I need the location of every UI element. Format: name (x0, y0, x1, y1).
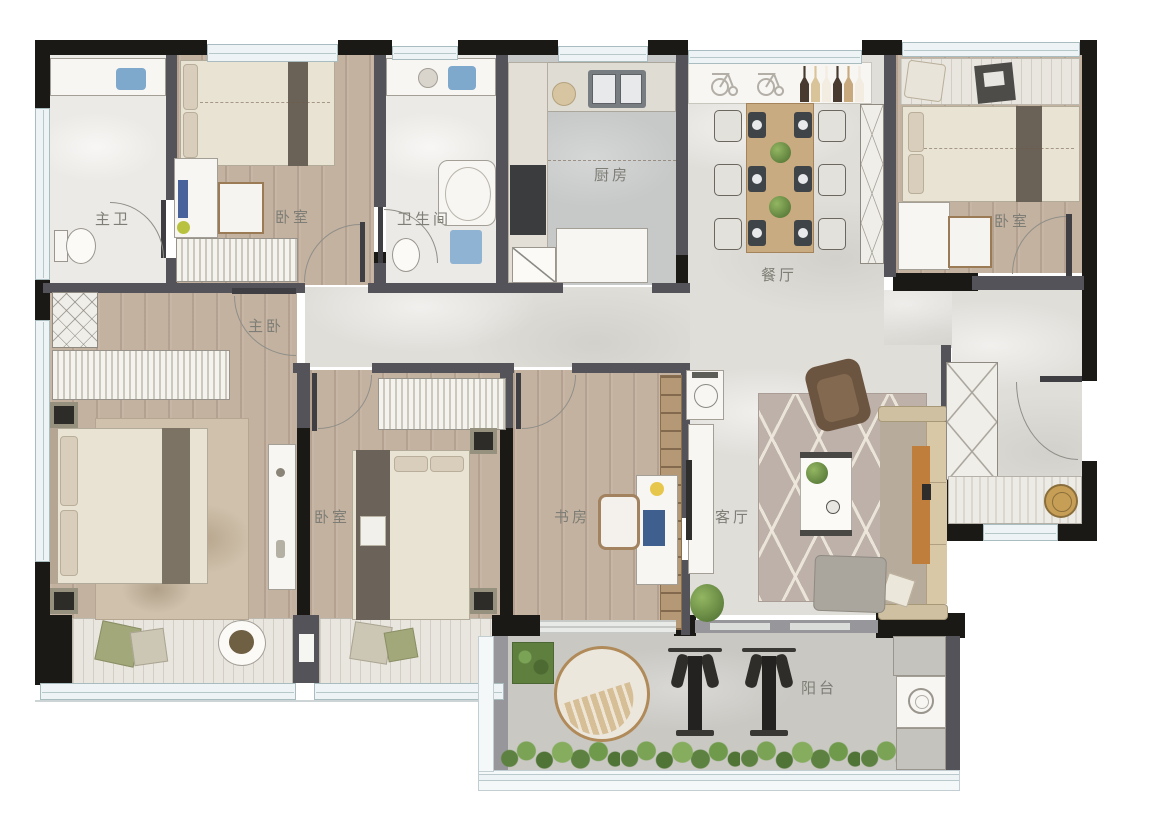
partition (368, 283, 563, 293)
bed (902, 106, 1080, 202)
decor-item (276, 540, 285, 558)
door-leaf-bathroom (378, 207, 383, 263)
dresser-console (268, 444, 296, 590)
room-label-master-bedroom: 主卧 (248, 319, 284, 334)
entry-wardrobe (946, 362, 998, 480)
office-chair (598, 494, 640, 550)
room-label-bedroom-top-left: 卧室 (275, 210, 311, 225)
room-label-bathroom: 卫生间 (397, 212, 451, 227)
dining-chair (714, 110, 742, 142)
table-plant (806, 462, 828, 484)
window-bottom-master (40, 683, 296, 700)
balcony-railing-left (478, 636, 494, 772)
machine-bar (742, 648, 796, 652)
partition (572, 363, 690, 373)
kitchen-island (556, 228, 648, 283)
machine-column (688, 656, 702, 730)
machine-arm (744, 653, 764, 689)
duvet-fold (924, 148, 1074, 149)
machine-arm (700, 653, 720, 689)
sink-basin (116, 68, 146, 90)
partition (884, 55, 896, 277)
headboard (50, 428, 58, 584)
bed-runner (162, 428, 190, 584)
pillow (183, 64, 198, 110)
partition (676, 55, 688, 255)
coffee-table-edge (800, 452, 852, 458)
sliding-door-glass (790, 623, 850, 630)
room-label-bedroom-middle: 卧室 (314, 510, 350, 525)
desk-lamp (650, 482, 664, 496)
toilet-bowl (66, 228, 96, 264)
wall (947, 524, 987, 541)
stool-ring (1052, 492, 1072, 512)
machine-arm (670, 653, 690, 689)
wall-decor-icon (706, 68, 740, 98)
machine-bar (668, 648, 722, 652)
dining-chair (714, 218, 742, 250)
room-label-bedroom-top-right: 卧室 (994, 214, 1030, 229)
nightstand (470, 428, 497, 454)
wardrobe (176, 238, 298, 282)
pillow (60, 436, 78, 506)
laundry-cabinet (896, 728, 946, 770)
table-plant (770, 142, 791, 163)
shower-mat (450, 230, 482, 264)
pillow (394, 456, 428, 472)
nightstand (50, 402, 78, 428)
wall (458, 40, 558, 55)
closet (52, 292, 98, 348)
folded-blanket (360, 516, 386, 546)
machine-base (676, 730, 714, 736)
plate (552, 82, 576, 106)
door-leaf-master-bedroom (232, 288, 296, 294)
bed-runner (288, 60, 308, 166)
wall-pier-opening (299, 634, 314, 662)
place-setting (794, 112, 812, 138)
sink-basin (448, 66, 476, 90)
exercise-machine (668, 648, 722, 744)
cup (826, 500, 840, 514)
room-label-study: 书房 (554, 510, 590, 525)
window-seat-cushion (130, 628, 168, 666)
site-boundary-line (35, 700, 485, 702)
window-top-kitchen (558, 46, 648, 62)
sofa (878, 406, 948, 620)
faucet (692, 372, 718, 378)
window-top-bedroom-right (902, 42, 1080, 57)
window-entry (983, 524, 1058, 541)
machine-arm (774, 653, 794, 689)
wall (297, 426, 310, 618)
place-setting (794, 220, 812, 246)
door-leaf-bedroom-middle (312, 373, 317, 431)
window-top-bathroom (392, 46, 458, 60)
wardrobe (52, 350, 230, 400)
window-top-bedroom-left (207, 44, 338, 62)
sink-bowl (620, 74, 642, 104)
partition (652, 283, 690, 293)
wall (862, 40, 902, 55)
exercise-machine (742, 648, 796, 744)
book (983, 71, 1004, 87)
room-label-living: 客厅 (715, 510, 751, 525)
dressing-mirror (948, 216, 992, 268)
machine-column (762, 656, 776, 730)
wall (648, 40, 688, 55)
door-leaf-study (516, 373, 521, 429)
sofa-armrest (878, 406, 948, 422)
remote (922, 484, 931, 500)
nightstand (470, 588, 497, 614)
window-left-lower (35, 320, 50, 562)
kitchen-door-panel (512, 247, 556, 283)
vanity-counter (386, 58, 496, 96)
pillow (183, 112, 198, 158)
nightstand (50, 588, 78, 614)
bedroom-cabinet (898, 202, 950, 270)
wall (1058, 524, 1097, 541)
floor-plan: 主卫 卧室 卫生间 厨房 餐厅 卧室 主卧 卧室 书房 客厅 阳台 (0, 0, 1162, 820)
window-seat-cushion (384, 628, 419, 663)
balcony-railing (478, 770, 960, 791)
dining-chair (818, 164, 846, 196)
partition (972, 276, 1084, 290)
sink-bowl (592, 74, 616, 104)
window-left-upper (35, 108, 50, 280)
planter-box (512, 642, 554, 684)
wall (35, 40, 50, 108)
decor-ball (177, 221, 190, 234)
place-setting (748, 220, 766, 246)
pillow (60, 510, 78, 576)
place-setting (794, 166, 812, 192)
window-seat-cushion (904, 60, 947, 103)
wall (492, 615, 540, 636)
monitor (178, 180, 188, 218)
room-label-balcony: 阳台 (801, 681, 837, 696)
dining-chair (818, 218, 846, 250)
partition (297, 363, 310, 428)
wall (1082, 40, 1097, 293)
round-basin (418, 68, 438, 88)
pillow (430, 456, 464, 472)
place-setting (748, 112, 766, 138)
bathtub-basin (445, 167, 491, 221)
place-setting (748, 166, 766, 192)
stove-appliance (510, 165, 546, 235)
cat (229, 630, 254, 654)
decor-item (276, 468, 285, 477)
room-label-kitchen: 厨房 (594, 168, 630, 183)
wall (893, 273, 978, 291)
tv (686, 460, 692, 540)
room-label-master-bath: 主卫 (95, 212, 131, 227)
wall (35, 615, 72, 685)
door-leaf-bedroom-left (360, 222, 365, 282)
partition (372, 363, 514, 373)
wardrobe (378, 378, 506, 430)
table-plant (769, 196, 791, 218)
balcony-side-wall (946, 636, 960, 772)
monitor (643, 510, 665, 546)
study-balcony-slider (540, 620, 676, 634)
pillow (908, 112, 924, 152)
floor-hall-right (884, 290, 952, 348)
partition (496, 55, 508, 290)
pillow (908, 154, 924, 194)
sofa-throw-orange (912, 446, 930, 564)
coffee-table (800, 452, 852, 536)
window-top-dining (688, 50, 862, 64)
machine-base (750, 730, 788, 736)
ottoman (813, 555, 887, 613)
basin (694, 384, 718, 408)
counter-guide (548, 160, 676, 161)
floor-plant (690, 584, 724, 622)
duvet-fold (200, 102, 330, 103)
washer-drum-inner (915, 695, 929, 709)
floor-hallway (305, 287, 690, 367)
laundry-cabinet (893, 636, 946, 676)
dining-chair (818, 110, 846, 142)
sliding-door-glass (710, 623, 770, 630)
door-leaf-bedroom-right (1066, 214, 1072, 276)
vanity-counter (50, 58, 166, 96)
sofa-armrest (878, 604, 948, 620)
room-label-dining: 餐厅 (761, 268, 797, 283)
wall-decor-icon (752, 68, 786, 98)
partition (374, 55, 386, 207)
wall (338, 40, 392, 55)
wall (500, 426, 513, 618)
dressing-mirror (218, 182, 264, 234)
balcony-greenery (500, 738, 946, 772)
wall (1082, 293, 1097, 381)
coffee-table-edge (800, 530, 852, 536)
bed-runner (1016, 106, 1042, 202)
dining-cabinet (860, 104, 884, 264)
window-bottom-middle (314, 683, 504, 700)
dining-chair (714, 164, 742, 196)
wall (35, 40, 207, 55)
bed (180, 60, 335, 166)
